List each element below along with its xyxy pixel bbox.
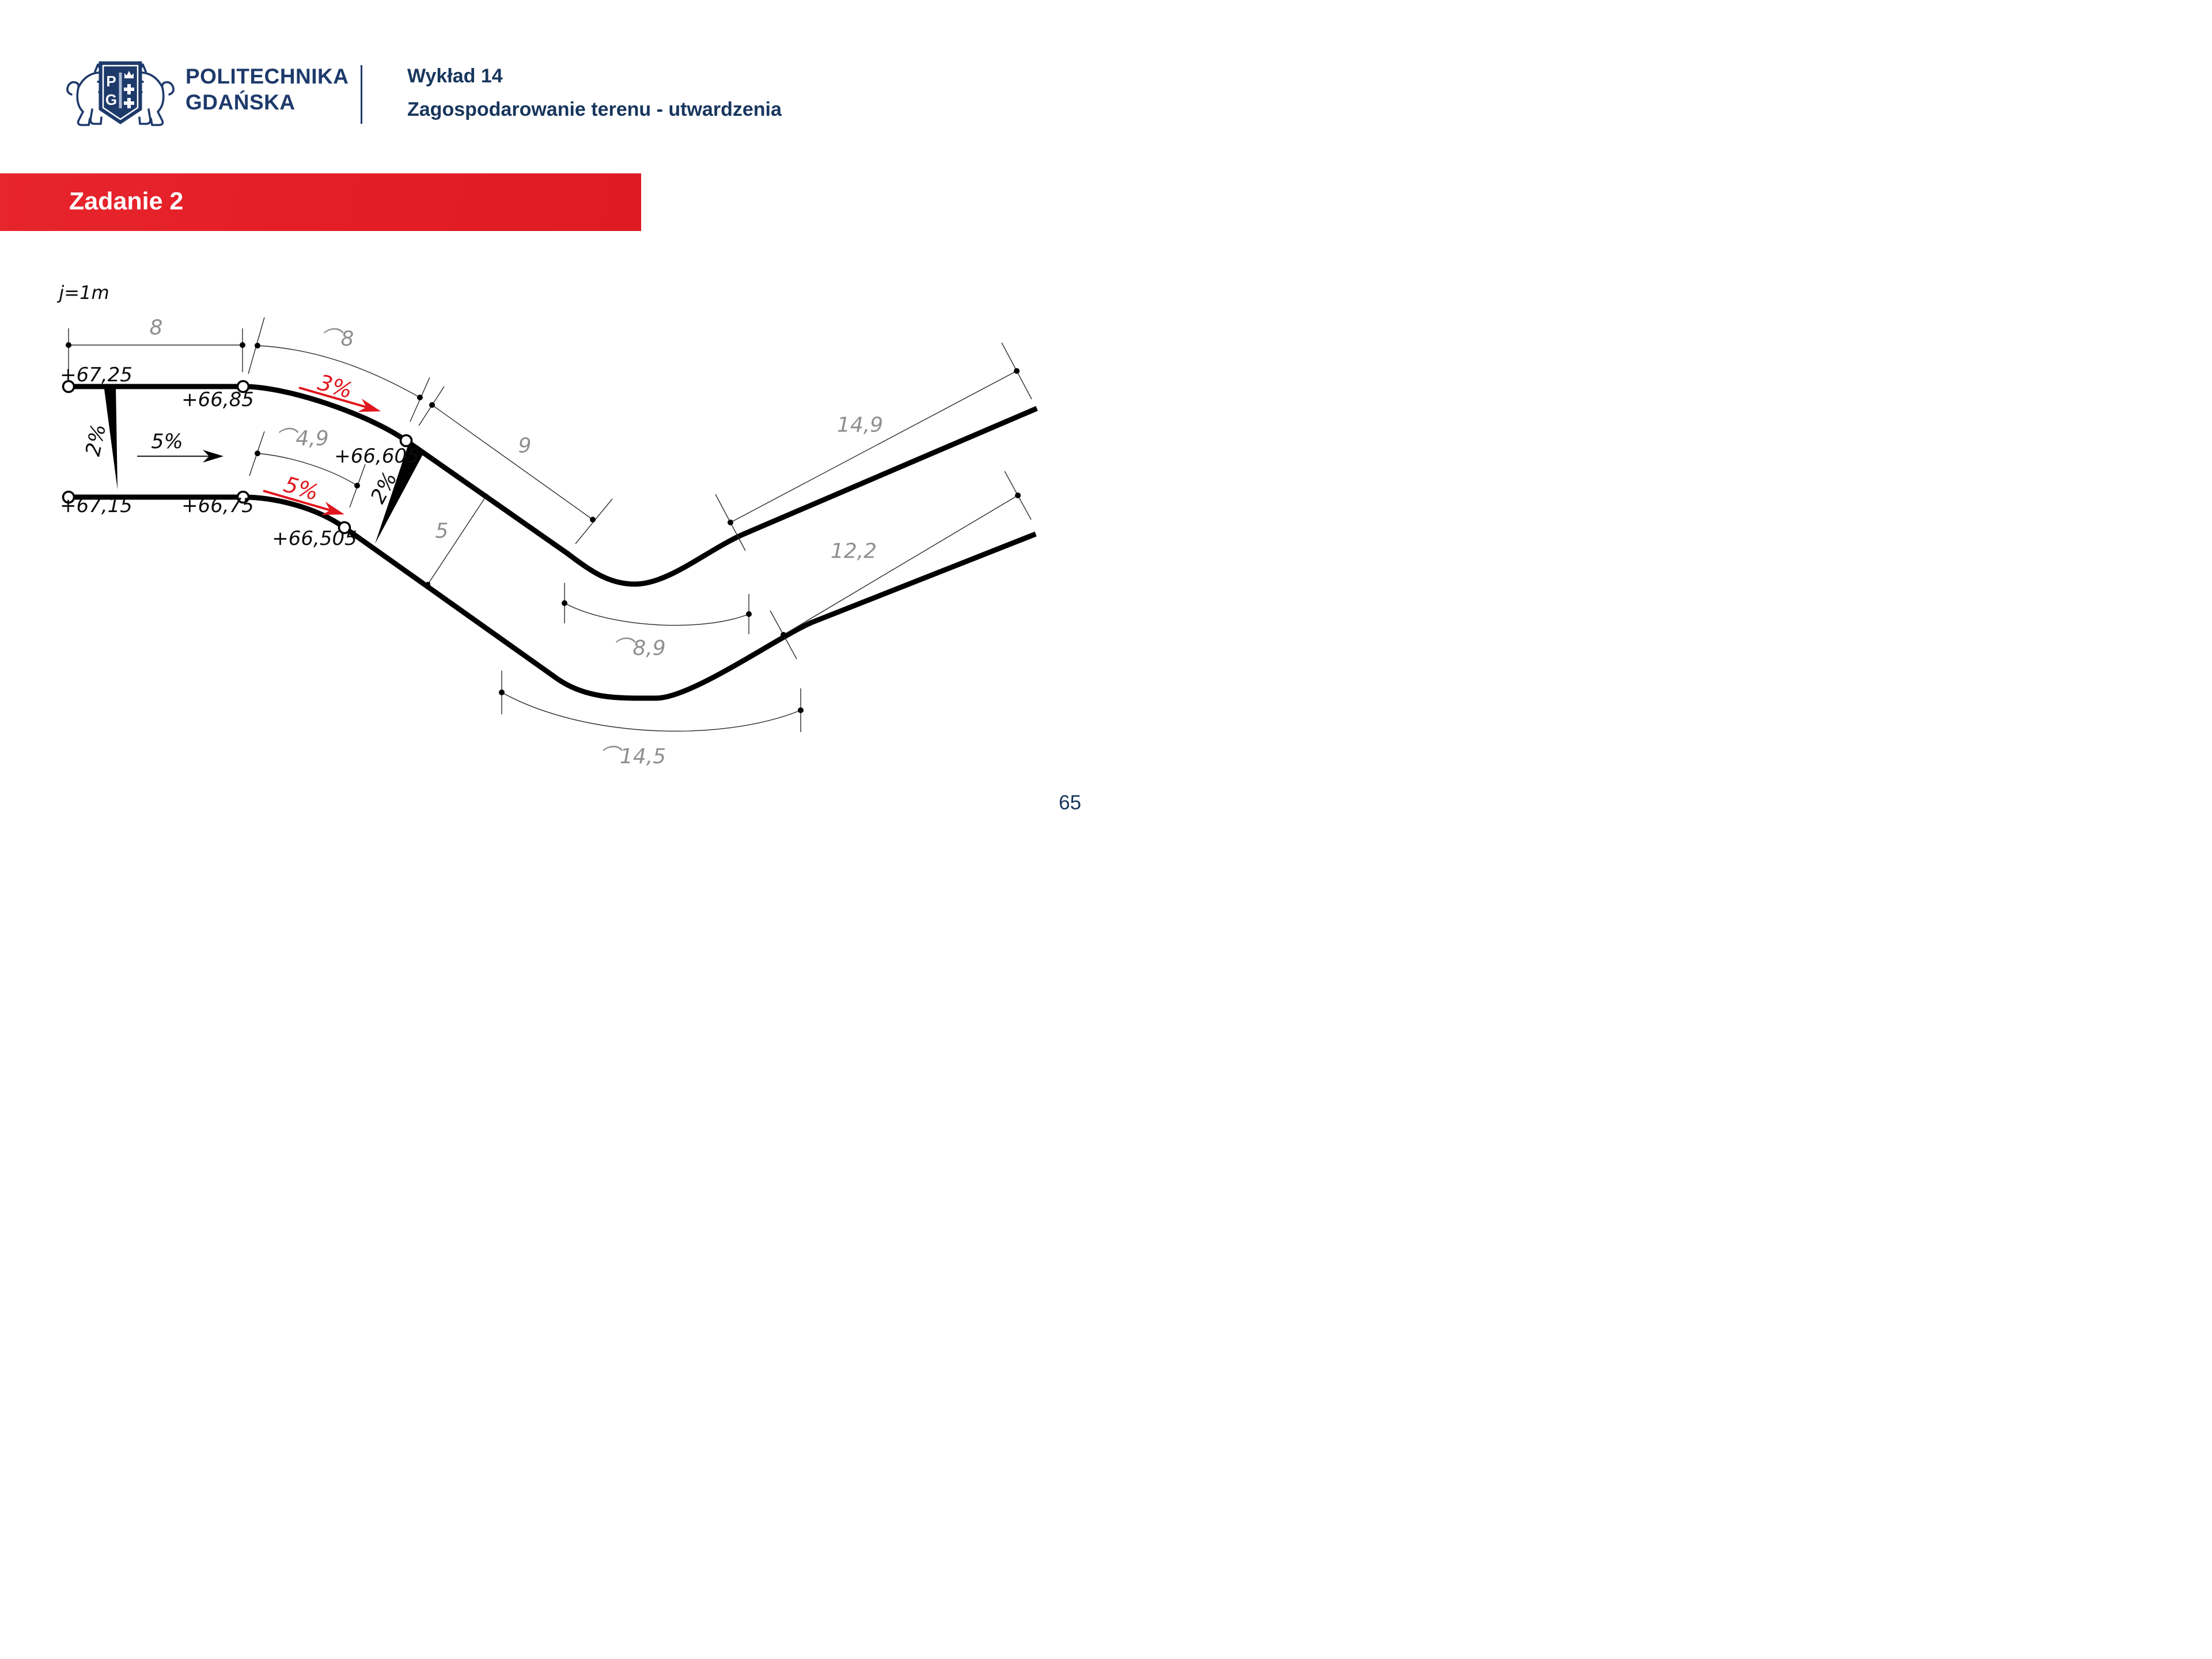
elevation-top-mid: +66,85 [181,388,254,411]
dim-top-arc: ⌒8 [320,322,354,352]
dim-mid-arc: ⌒8,9 [612,631,665,661]
elevation-top-curve: +66,605 [334,445,419,468]
dim-right-top: 14,9 [837,414,883,437]
elevation-bottom-curve: +66,505 [272,527,357,550]
road-edge-bottom [69,497,1036,698]
elevation-bottom-mid: +66,75 [181,494,254,517]
slope-center-long: 5% [151,430,183,453]
dim-149-line [730,371,1017,522]
road-plan-figure: j=1m 8 ⌒8 9 ⌒4,9 5 14,9 12,2 ⌒8,9 ⌒14,5 … [0,0,1106,829]
dim-diagonal: 9 [518,434,532,458]
elevation-bottom-left: +67,15 [60,494,132,517]
dim-bottom-arc: ⌒14,5 [599,740,666,770]
elevation-top-left: +67,25 [60,363,132,387]
road-edges [69,387,1037,698]
arc-89-line [565,603,749,626]
scale-note: j=1m [59,282,109,304]
dimension-lines [69,317,1032,732]
dim-road-width: 5 [435,520,449,543]
dim-right-bottom: 12,2 [831,540,877,563]
dim-122-line [783,495,1018,635]
road-plan-canvas [0,0,1106,829]
dim-top-straight: 8 [150,316,163,340]
road-edge-top [69,387,1037,584]
dim-inner-arc: ⌒4,9 [275,422,328,452]
page-number: 65 [1059,791,1081,815]
dim-9-line [432,405,593,520]
